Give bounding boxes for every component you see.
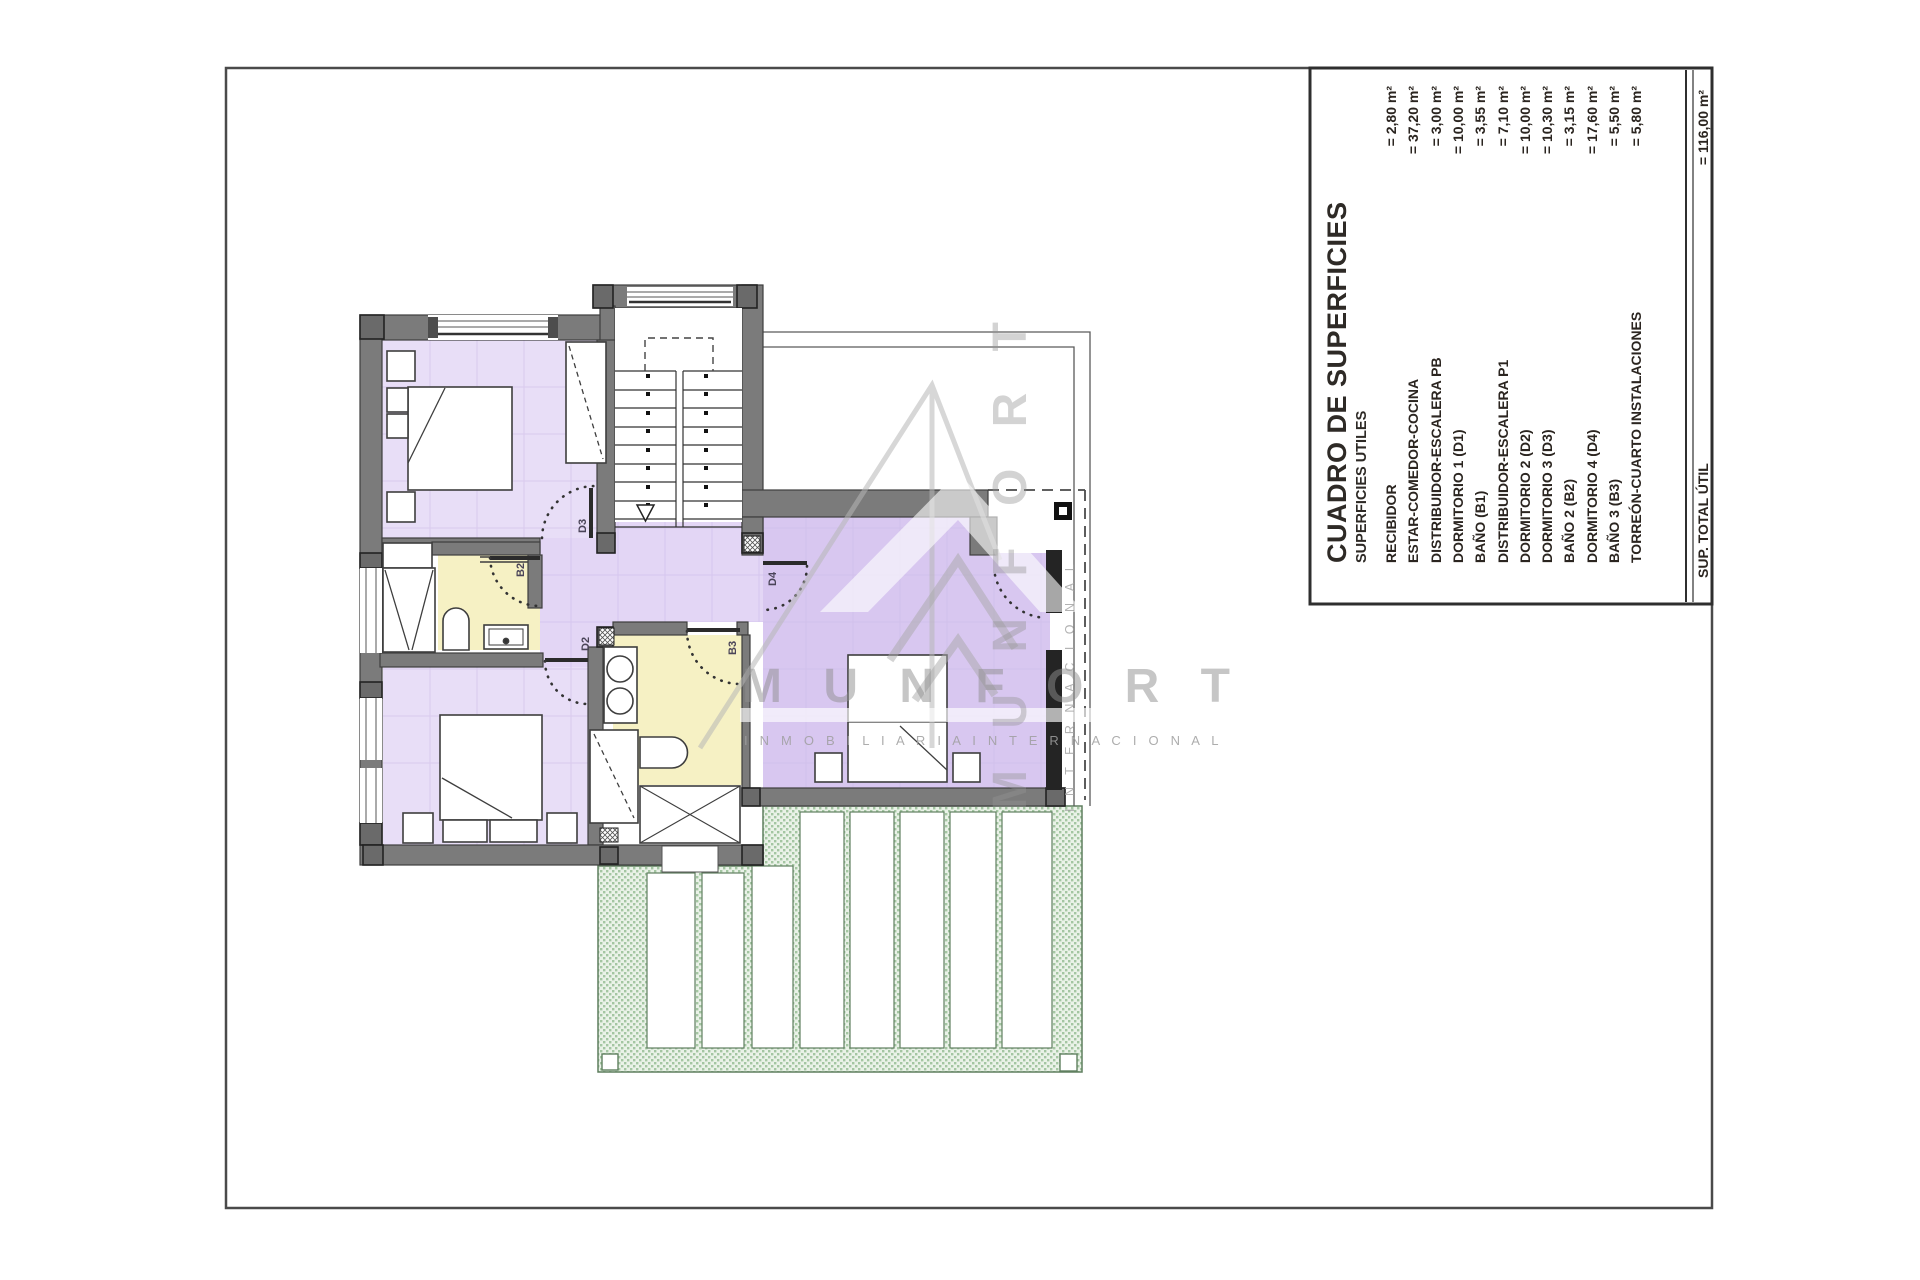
wardrobe-b2side bbox=[383, 568, 435, 652]
table-row-value: = 5,80 m² bbox=[1628, 86, 1644, 147]
window-d3-top bbox=[428, 315, 558, 340]
nightstand bbox=[403, 813, 433, 843]
table-total-value: = 116,00 m² bbox=[1695, 90, 1711, 165]
shower-b3 bbox=[590, 730, 638, 823]
watermark-brand-vertical: M U N F O R T bbox=[984, 308, 1037, 810]
table-row-name: DORMITORIO 4 (D4) bbox=[1584, 429, 1600, 563]
table-row-name: BAÑO 3 (B3) bbox=[1605, 479, 1622, 563]
door-label-d4: D4 bbox=[767, 571, 779, 586]
table-row-value: = 10,00 m² bbox=[1450, 86, 1466, 154]
table-row-name: DORMITORIO 1 (D1) bbox=[1450, 429, 1466, 563]
nightstand bbox=[547, 813, 577, 843]
bed-d3 bbox=[408, 387, 512, 490]
toilet-b3 bbox=[640, 737, 687, 768]
window-left-d2-b bbox=[360, 768, 382, 823]
table-row-name: DISTRIBUIDOR-ESCALERA P1 bbox=[1495, 360, 1511, 563]
table-row-value: = 7,10 m² bbox=[1495, 86, 1511, 147]
table-row-value: = 17,60 m² bbox=[1584, 86, 1600, 154]
table-row-name: BAÑO (B1) bbox=[1471, 491, 1488, 563]
terrace-doorstep bbox=[662, 846, 718, 872]
watermark-tagline-vertical: I N T E R N A C I O N A L bbox=[1063, 560, 1077, 812]
table-row-value: = 37,20 m² bbox=[1405, 86, 1421, 154]
table-row-value: = 2,80 m² bbox=[1383, 86, 1399, 147]
table-row-value: = 5,50 m² bbox=[1606, 86, 1622, 147]
table-row-value: = 10,30 m² bbox=[1539, 86, 1555, 154]
door-label-d3: D3 bbox=[577, 519, 589, 533]
table-row-name: DORMITORIO 3 (D3) bbox=[1539, 429, 1555, 563]
table-total-label: SUP. TOTAL ÚTIL bbox=[1694, 463, 1711, 578]
door-label-b3: B3 bbox=[727, 641, 739, 655]
door-label-b2: B2 bbox=[515, 563, 527, 577]
window-left-d2-a bbox=[360, 698, 382, 760]
table-row-value: = 10,00 m² bbox=[1517, 86, 1533, 154]
table-row-value: = 3,15 m² bbox=[1561, 86, 1577, 147]
table-row-name: TORREÓN-CUARTO INSTALACIONES bbox=[1627, 312, 1644, 563]
toilet-b2 bbox=[443, 608, 469, 650]
table-subtitle: SUPERFICIES UTILES bbox=[1354, 410, 1370, 563]
table-title: CUADRO DE SUPERFICIES bbox=[1322, 201, 1352, 563]
closet bbox=[383, 543, 432, 568]
nightstand bbox=[815, 753, 842, 782]
surface-table: CUADRO DE SUPERFICIES SUPERFICIES UTILES… bbox=[1310, 68, 1712, 604]
wardrobe-d3 bbox=[566, 342, 606, 463]
terrace-post bbox=[602, 1054, 618, 1070]
floorplan-sheet: CUADRO DE SUPERFICIES SUPERFICIES UTILES… bbox=[0, 0, 1920, 1280]
table-row-value: = 3,00 m² bbox=[1428, 86, 1444, 147]
table-row-name: DISTRIBUIDOR-ESCALERA PB bbox=[1428, 357, 1444, 563]
table-row-name: BAÑO 2 (B2) bbox=[1560, 479, 1577, 563]
nightstand bbox=[953, 753, 980, 782]
floorplan-drawing: CUADRO DE SUPERFICIES SUPERFICIES UTILES… bbox=[0, 0, 1920, 1280]
window-left-b2 bbox=[360, 568, 382, 653]
nightstand bbox=[387, 351, 415, 381]
terrace-post bbox=[1060, 1054, 1077, 1071]
table-row-name: ESTAR-COMEDOR-COCINA bbox=[1405, 379, 1421, 563]
window-stairs-top bbox=[627, 287, 733, 306]
table-row-name: RECIBIDOR bbox=[1383, 484, 1399, 563]
door-label-d2: D2 bbox=[580, 637, 592, 651]
staircase bbox=[615, 308, 742, 527]
nightstand bbox=[387, 492, 415, 522]
hall-understairs-floor bbox=[613, 520, 742, 622]
table-row-name: DORMITORIO 2 (D2) bbox=[1517, 429, 1533, 563]
table-row-value: = 3,55 m² bbox=[1472, 86, 1488, 147]
bathtub-b3 bbox=[640, 786, 740, 843]
